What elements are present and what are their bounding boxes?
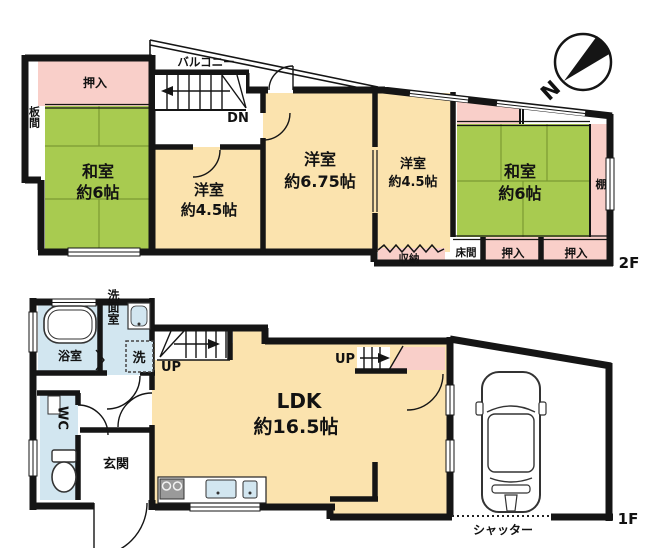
washitsu-right-name: 和室 [504,162,536,181]
staircase-1f-right [357,346,445,371]
stairs-up-left-label: UP [161,360,181,375]
stairs-up-right-label: UP [335,352,355,367]
washroom-sink [128,303,150,329]
youshitsu-mid-size: 約4.5帖 [181,201,238,219]
floor-1f-label: 1F [618,510,639,528]
floor-2f-label: 2F [619,254,640,272]
bathtub [44,306,96,343]
balcony-label: バルコニー [177,55,234,69]
oshiire-top-label: 押入 [83,75,107,90]
tokonoma-label: 床間 [456,246,477,259]
washitsu-left-size: 約6帖 [76,183,119,202]
youshitsu-large-name: 洋室 [304,150,336,169]
bathroom-label: 浴室 [58,348,82,363]
shutter-label: シャッター [473,523,533,537]
ldk-size: 約16.5帖 [254,415,339,438]
room-ldk-lower [332,500,448,514]
youshitsu-right-name: 洋室 [400,156,426,172]
youshitsu-mid-name: 洋室 [194,181,224,199]
staircase-1f-left [155,329,230,360]
staircase-2f [155,75,246,109]
floor-2f: N バルコニー DN 押入 板間 和室 約6帖 洋室 約4.5帖 洋室 約6.7… [25,34,639,272]
tana-label: 棚 [596,177,607,191]
washitsu-right-size: 約6帖 [498,184,541,203]
oshiire-right-label: 押入 [565,246,588,260]
floor-1f: 浴室 洗面室 洗 WC 玄関 UP UP LDK 約16.5帖 シャッター 1F [29,288,638,548]
floorplan-svg: N バルコニー DN 押入 板間 和室 約6帖 洋室 約4.5帖 洋室 約6.7… [0,0,649,548]
ldk-name: LDK [277,389,323,413]
itanoma-label: 板間 [28,105,41,129]
youshitsu-right-size: 約4.5帖 [388,174,437,190]
washitsu-left-name: 和室 [82,162,114,181]
stairs-dn-label: DN [227,111,249,126]
kitchen-sink-icon [206,480,236,498]
car-icon [476,372,546,512]
washer-label: 洗 [132,350,145,366]
kitchen-unit-icon [243,481,257,498]
room-youshitsu-mid [155,147,263,252]
washroom-label: 洗面室 [106,288,120,326]
floorplan-canvas: N バルコニー DN 押入 板間 和室 約6帖 洋室 約4.5帖 洋室 約6.7… [0,0,649,548]
entrance-label: 玄関 [103,456,129,472]
youshitsu-large-size: 約6.75帖 [284,172,355,191]
shuunou-label: 収納 [399,252,420,265]
wc-label: WC [55,406,70,430]
kitchen-counter [158,477,266,503]
oshiire-mid-label: 押入 [502,246,525,260]
compass: N [536,34,611,105]
room-youshitsu-right [375,93,453,252]
